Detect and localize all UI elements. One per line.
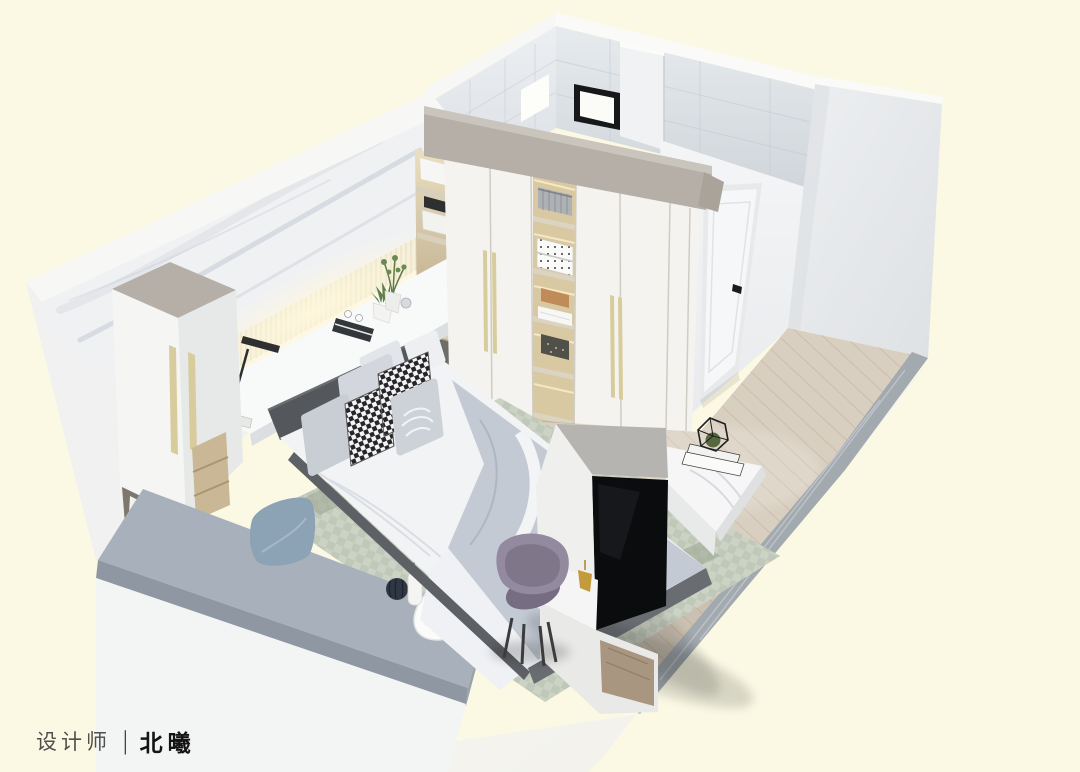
credit-name: 北曦 — [140, 724, 196, 758]
wardrobe-open-section — [533, 169, 576, 446]
credit-divider: | — [123, 726, 128, 756]
teacup — [356, 315, 363, 322]
right-wall — [788, 76, 944, 358]
bathroom-partition-wall — [620, 40, 664, 150]
interior-render-image: 设计师 | 北曦 — [0, 0, 1080, 772]
chair-shadow — [490, 641, 570, 663]
tall-plant-vase — [385, 291, 401, 313]
chair-back-inner — [505, 544, 560, 587]
scene-svg — [0, 0, 1080, 772]
teacup — [345, 311, 352, 318]
chrome-decor — [401, 298, 411, 308]
partition-face — [620, 47, 664, 150]
credit-role: 设计师 — [36, 726, 111, 756]
designer-credit: 设计师 | 北曦 — [36, 724, 196, 758]
